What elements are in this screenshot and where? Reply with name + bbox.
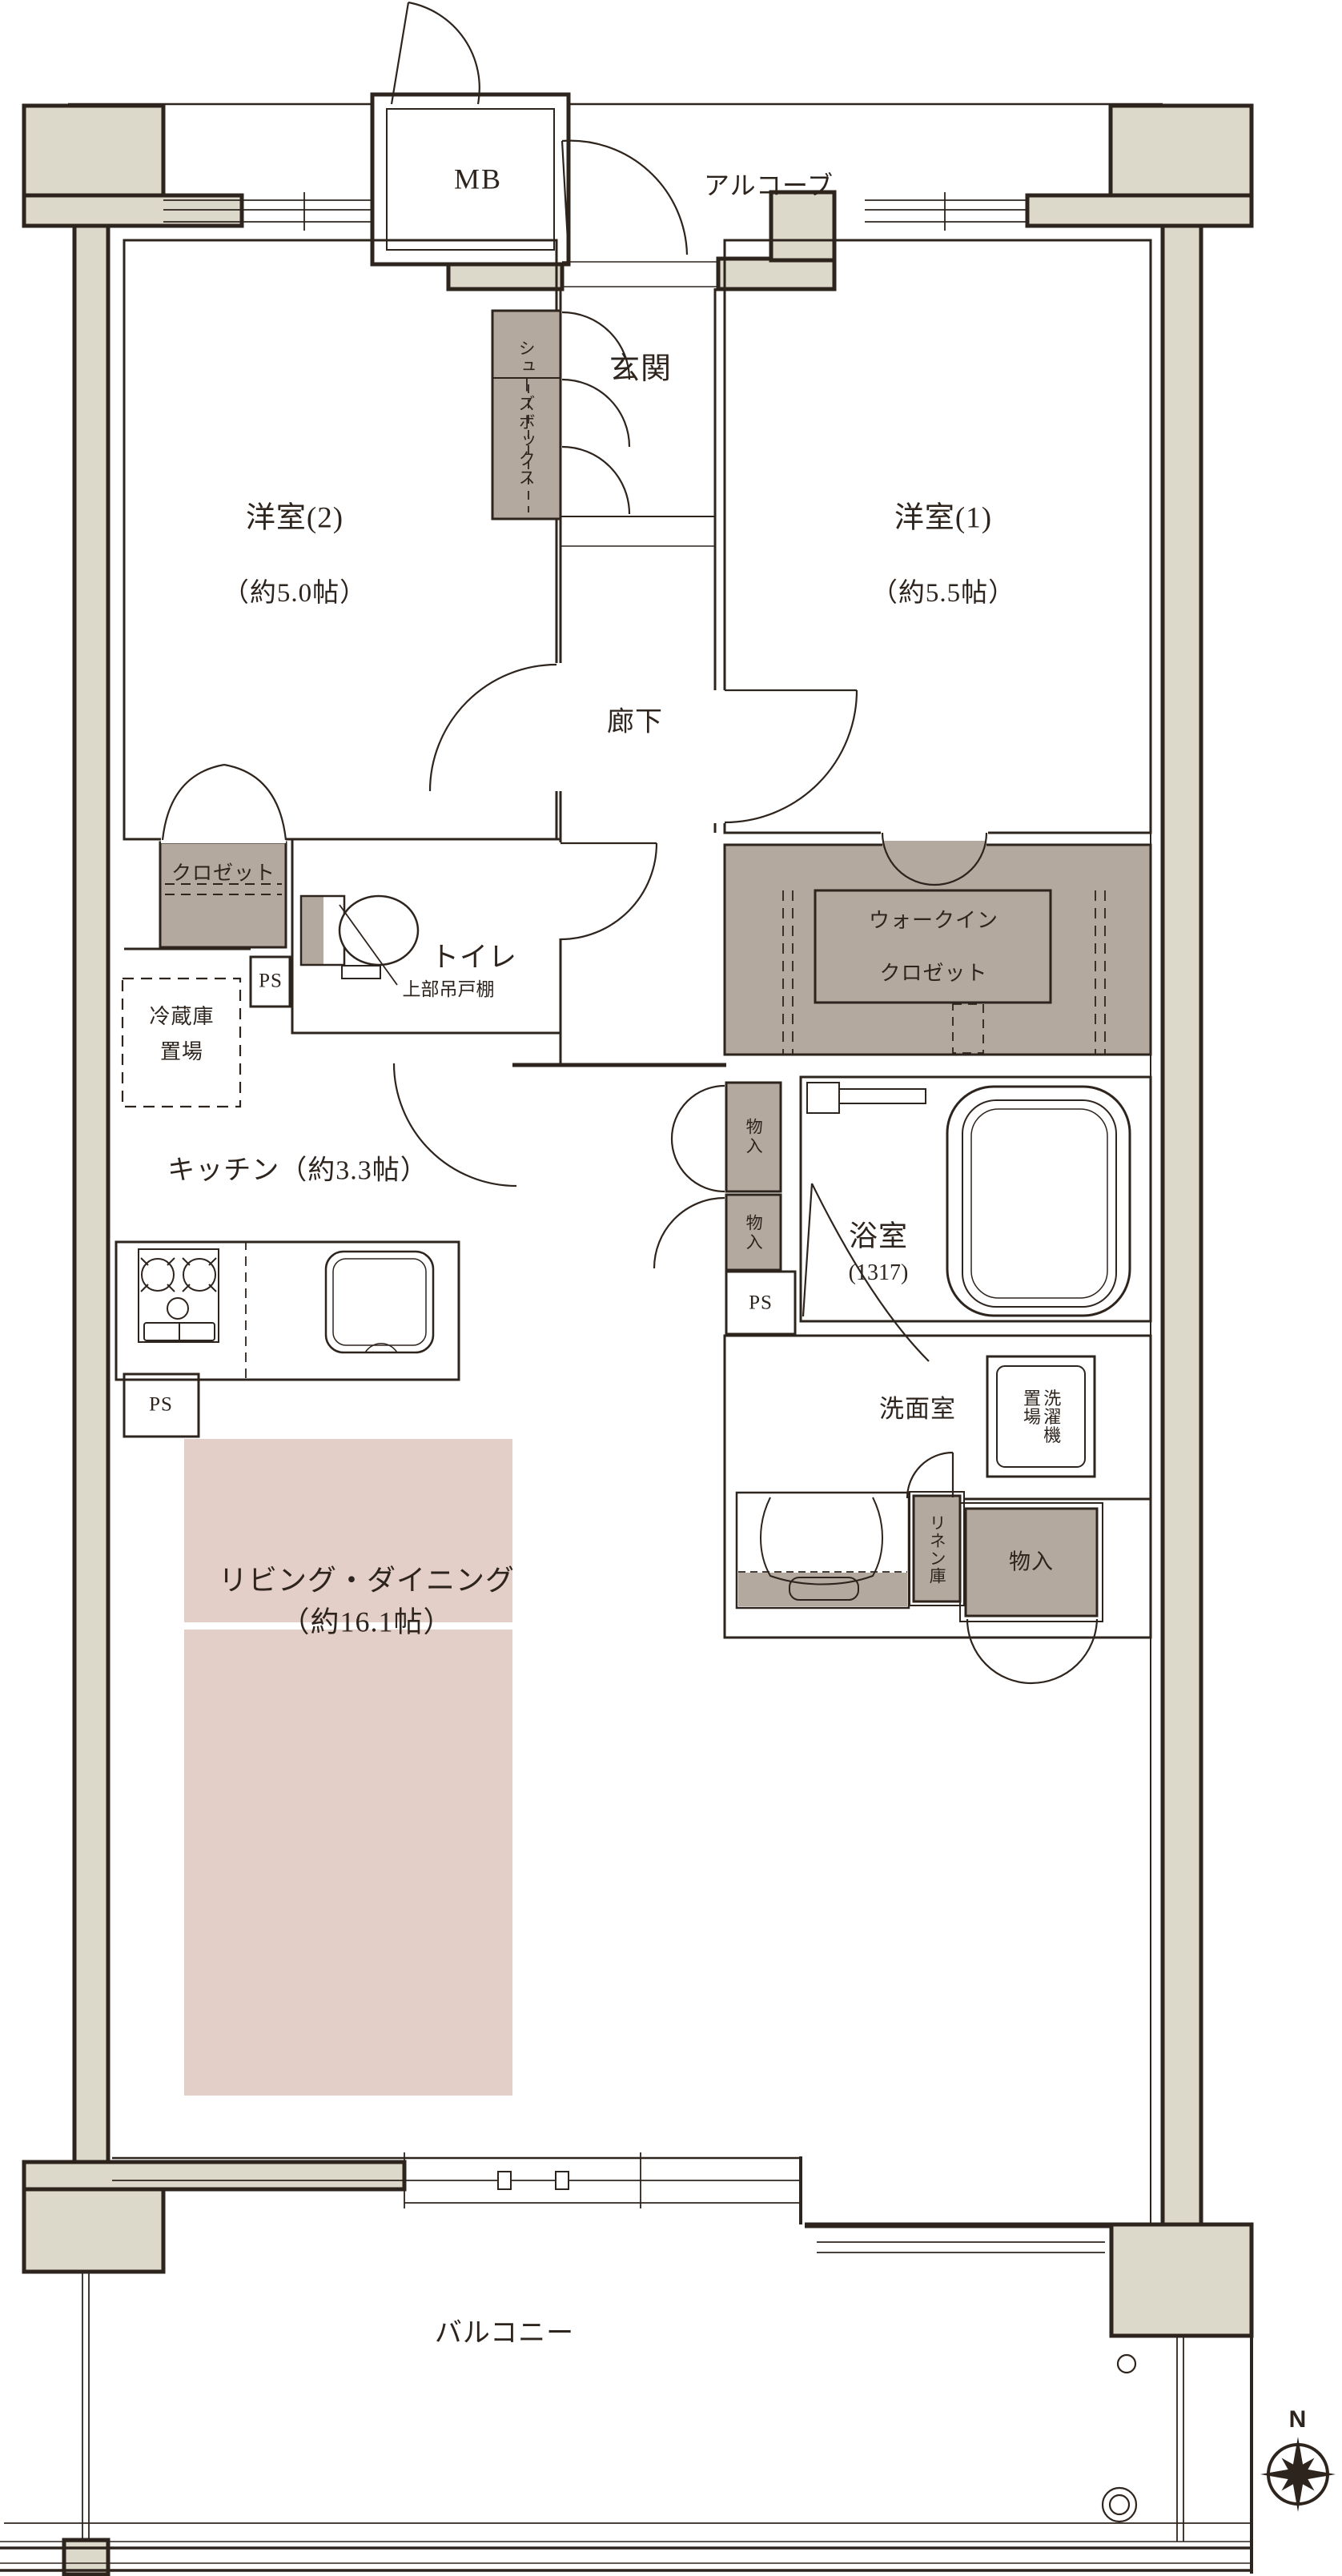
living-accent-floor [184, 1439, 512, 2096]
label-storage-a: 物入 [744, 1118, 763, 1156]
label-living-dining-size: （約16.1帖） [280, 1605, 452, 1638]
label-wic-1: ウォークイン [869, 909, 998, 933]
storage-c-doors [967, 1619, 1097, 1683]
label-storage-b: 物入 [744, 1214, 763, 1252]
label-washer-space: 洗濯機 置場 [1021, 1389, 1062, 1445]
window-handle-1 [498, 2172, 511, 2189]
label-ps-1: PS [259, 971, 283, 994]
pillar-bottom-left [24, 2189, 163, 2272]
room1-outline [725, 240, 1151, 833]
label-bath-size: (1317) [849, 1260, 909, 1286]
room2-door [430, 665, 556, 791]
label-fridge-1: 冷蔵庫 [149, 1005, 214, 1029]
label-compass-north: N [1289, 2406, 1308, 2434]
mb-door [392, 2, 480, 104]
storage-b-door [654, 1198, 725, 1268]
toilet-door [561, 843, 657, 939]
label-kitchen: キッチン（約3.3帖） [167, 1155, 428, 1186]
wall-band-top-right [1027, 195, 1252, 226]
label-balcony: バルコニー [435, 2317, 574, 2349]
label-storage-c: 物入 [1009, 1549, 1054, 1574]
entry-wall-right [718, 259, 834, 289]
label-room1-size: （約5.5帖） [871, 579, 1015, 609]
label-shoe-box: シューズボックス [516, 340, 536, 487]
balcony-vent [1118, 2355, 1135, 2373]
label-room2-size: （約5.0帖） [223, 579, 367, 609]
label-entrance: 玄関 [609, 352, 672, 388]
label-living-dining-name: リビング・ダイニング [219, 1564, 515, 1597]
balcony-group [0, 2272, 1252, 2574]
room1-door [725, 690, 857, 822]
compass-rose [1260, 2437, 1336, 2512]
entry-door [562, 141, 687, 255]
entry-wall-right-upper [771, 192, 834, 260]
stove [116, 1242, 246, 1380]
shoebox-door-2 [562, 380, 629, 447]
window-handle-2 [556, 2172, 569, 2189]
balcony-railing [0, 2542, 1252, 2570]
label-washroom: 洗面室 [879, 1395, 956, 1424]
label-room2-name: 洋室(2) [246, 502, 344, 536]
wic-door-gap [882, 841, 986, 849]
label-toilet: トイレ [431, 942, 517, 974]
label-bath-name: 浴室 [849, 1220, 908, 1252]
label-wic-2: クロゼット [879, 962, 987, 986]
label-meter-box: MB [454, 163, 502, 195]
label-ps-3: PS [149, 1394, 173, 1417]
wall-left [74, 226, 108, 2164]
pillar-top-left [24, 106, 163, 195]
closet-bifold-doors [163, 765, 286, 840]
label-linen: リネン庫 [927, 1514, 946, 1585]
label-room1-name: 洋室(1) [894, 502, 992, 536]
label-hallway: 廊下 [607, 706, 663, 737]
toilet-fixture [301, 896, 418, 985]
shoebox-door-3 [562, 447, 629, 514]
closet-opening [161, 836, 286, 843]
storage-a-doors [672, 1086, 725, 1192]
floorplan: アルコーブ MB 玄関 シューズボックス 洋室(2) （約5.0帖） 洋室(1)… [0, 0, 1342, 2576]
balcony-drain [1103, 2488, 1136, 2522]
wall-sill-bottom-left [24, 2162, 404, 2189]
label-closet: クロゼット [171, 863, 275, 886]
vanity-sink [737, 1493, 909, 1608]
label-alcove: アルコーブ [704, 171, 834, 201]
label-ps-2: PS [749, 1292, 773, 1316]
wic-box [725, 845, 1151, 1055]
label-fridge-2: 置場 [160, 1040, 203, 1064]
label-upper-cabinet: 上部吊戸棚 [403, 979, 495, 1000]
pillar-bottom-right [1111, 2224, 1252, 2336]
toilet-outline [292, 839, 561, 1033]
kitchen-sink [326, 1252, 433, 1352]
pillar-top-right [1111, 106, 1252, 195]
wall-right [1163, 226, 1201, 2224]
